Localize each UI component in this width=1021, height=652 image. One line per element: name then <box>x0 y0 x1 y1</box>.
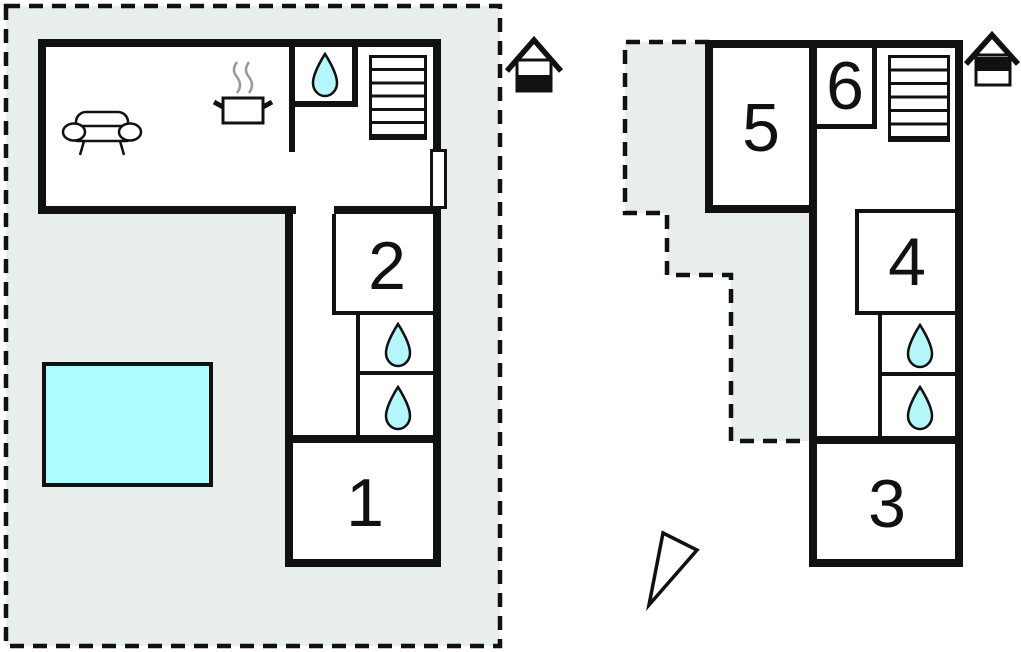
room-6-label: 6 <box>800 41 890 131</box>
water-drop-icon <box>906 385 934 431</box>
room-3-label: 3 <box>842 459 932 549</box>
stairs-icon <box>888 55 950 142</box>
north-arrow-icon <box>640 524 706 614</box>
wall <box>809 559 963 567</box>
wall <box>705 40 713 213</box>
wall <box>878 372 959 376</box>
wall <box>855 209 859 315</box>
wall <box>705 205 817 213</box>
wall <box>855 311 959 315</box>
upper-floor-plan: 5 6 4 3 <box>0 0 1021 652</box>
room-4-label: 4 <box>862 217 952 307</box>
wall <box>955 40 963 567</box>
water-drop-icon <box>906 323 934 369</box>
wall <box>855 209 959 213</box>
floor-plan-canvas: 2 1 <box>0 0 1021 652</box>
room-5-label: 5 <box>716 83 806 173</box>
upper-floor-house-icon <box>962 30 1021 90</box>
wall <box>809 436 963 444</box>
